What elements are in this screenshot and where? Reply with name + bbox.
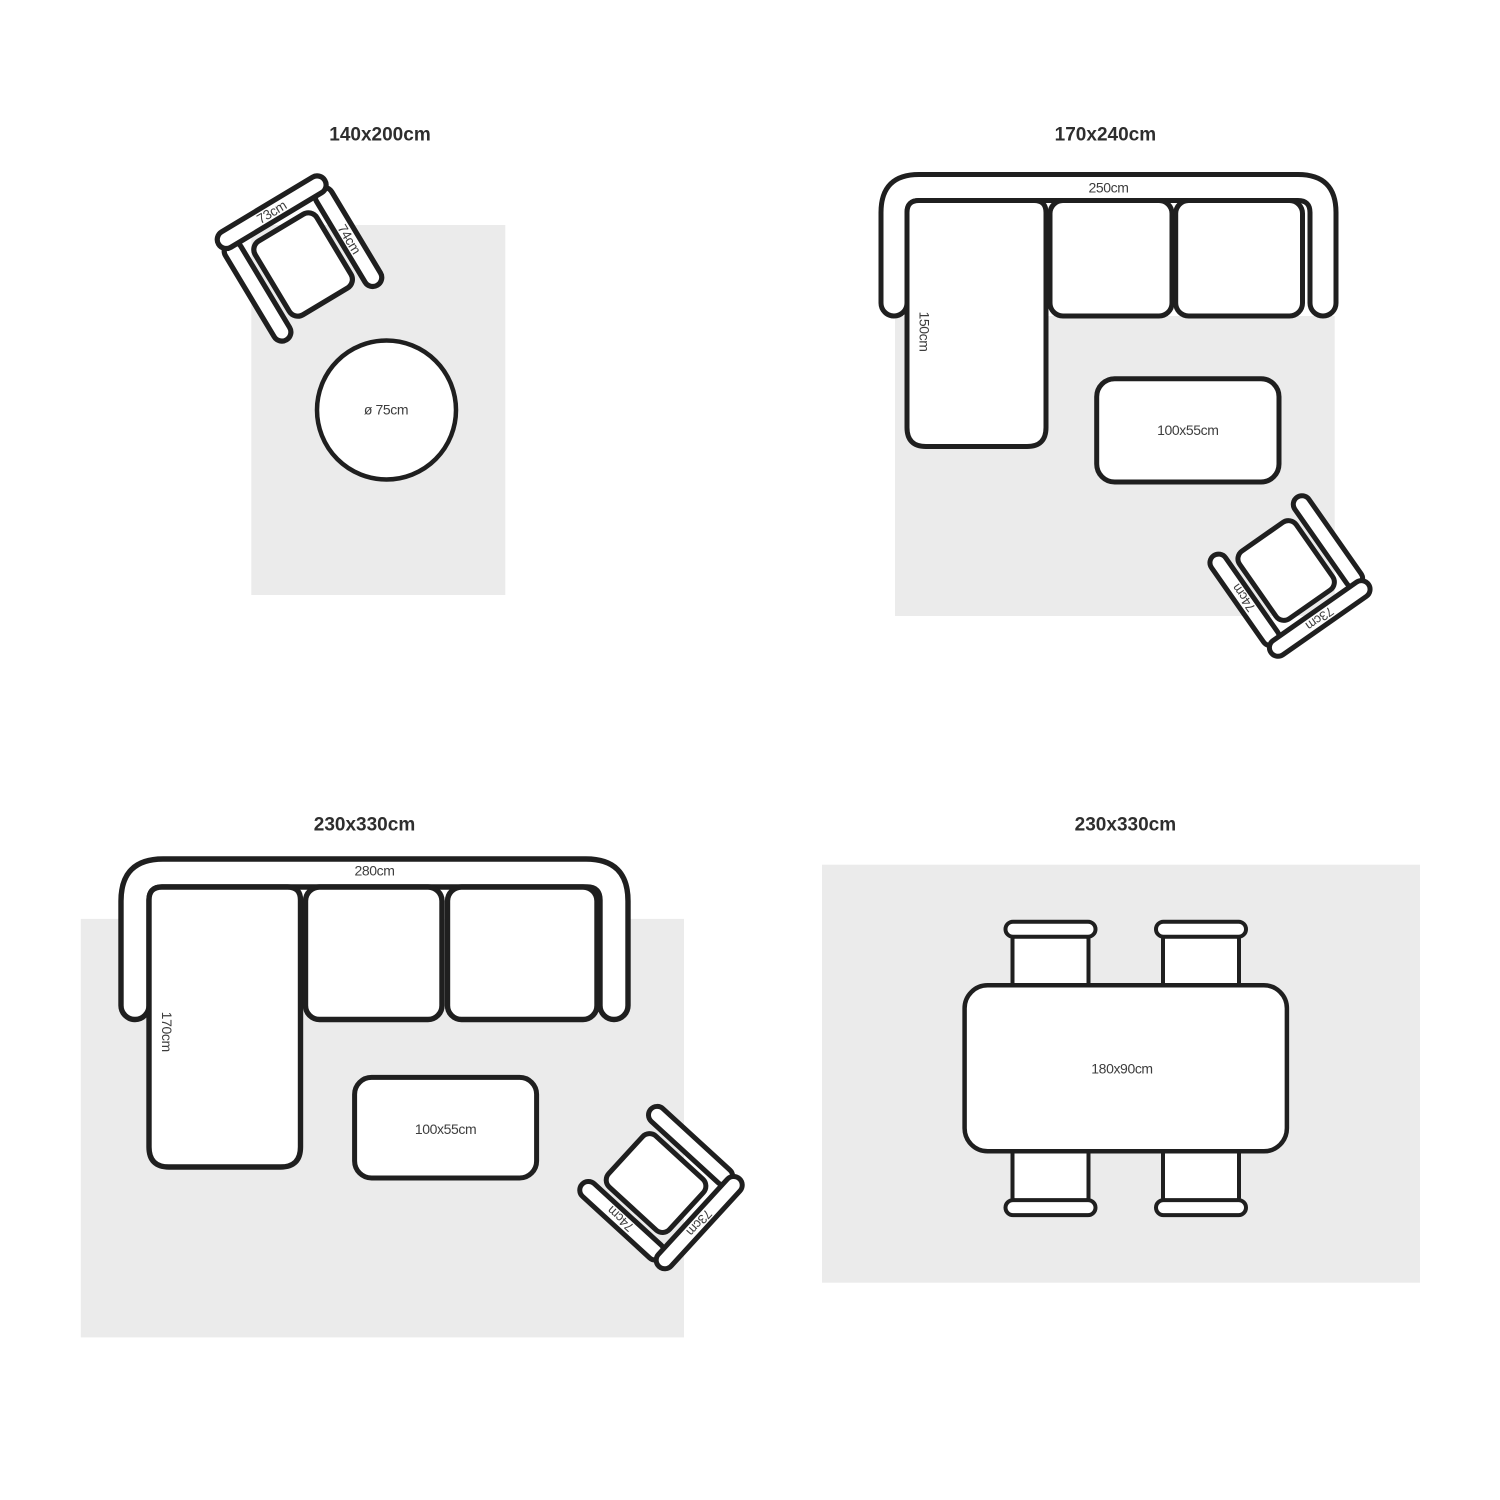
svg-text:100x55cm: 100x55cm — [415, 1121, 476, 1137]
svg-text:170x240cm: 170x240cm — [1055, 125, 1156, 146]
svg-text:140x200cm: 140x200cm — [329, 125, 430, 146]
svg-text:100x55cm: 100x55cm — [1157, 422, 1218, 438]
svg-text:150cm: 150cm — [917, 311, 933, 351]
svg-text:230x330cm: 230x330cm — [1075, 815, 1176, 836]
svg-text:280cm: 280cm — [354, 863, 394, 879]
svg-text:170cm: 170cm — [159, 1012, 175, 1052]
svg-text:180x90cm: 180x90cm — [1091, 1061, 1152, 1077]
svg-text:ø 75cm: ø 75cm — [364, 402, 408, 418]
svg-text:230x330cm: 230x330cm — [314, 815, 415, 836]
svg-text:250cm: 250cm — [1088, 180, 1128, 196]
